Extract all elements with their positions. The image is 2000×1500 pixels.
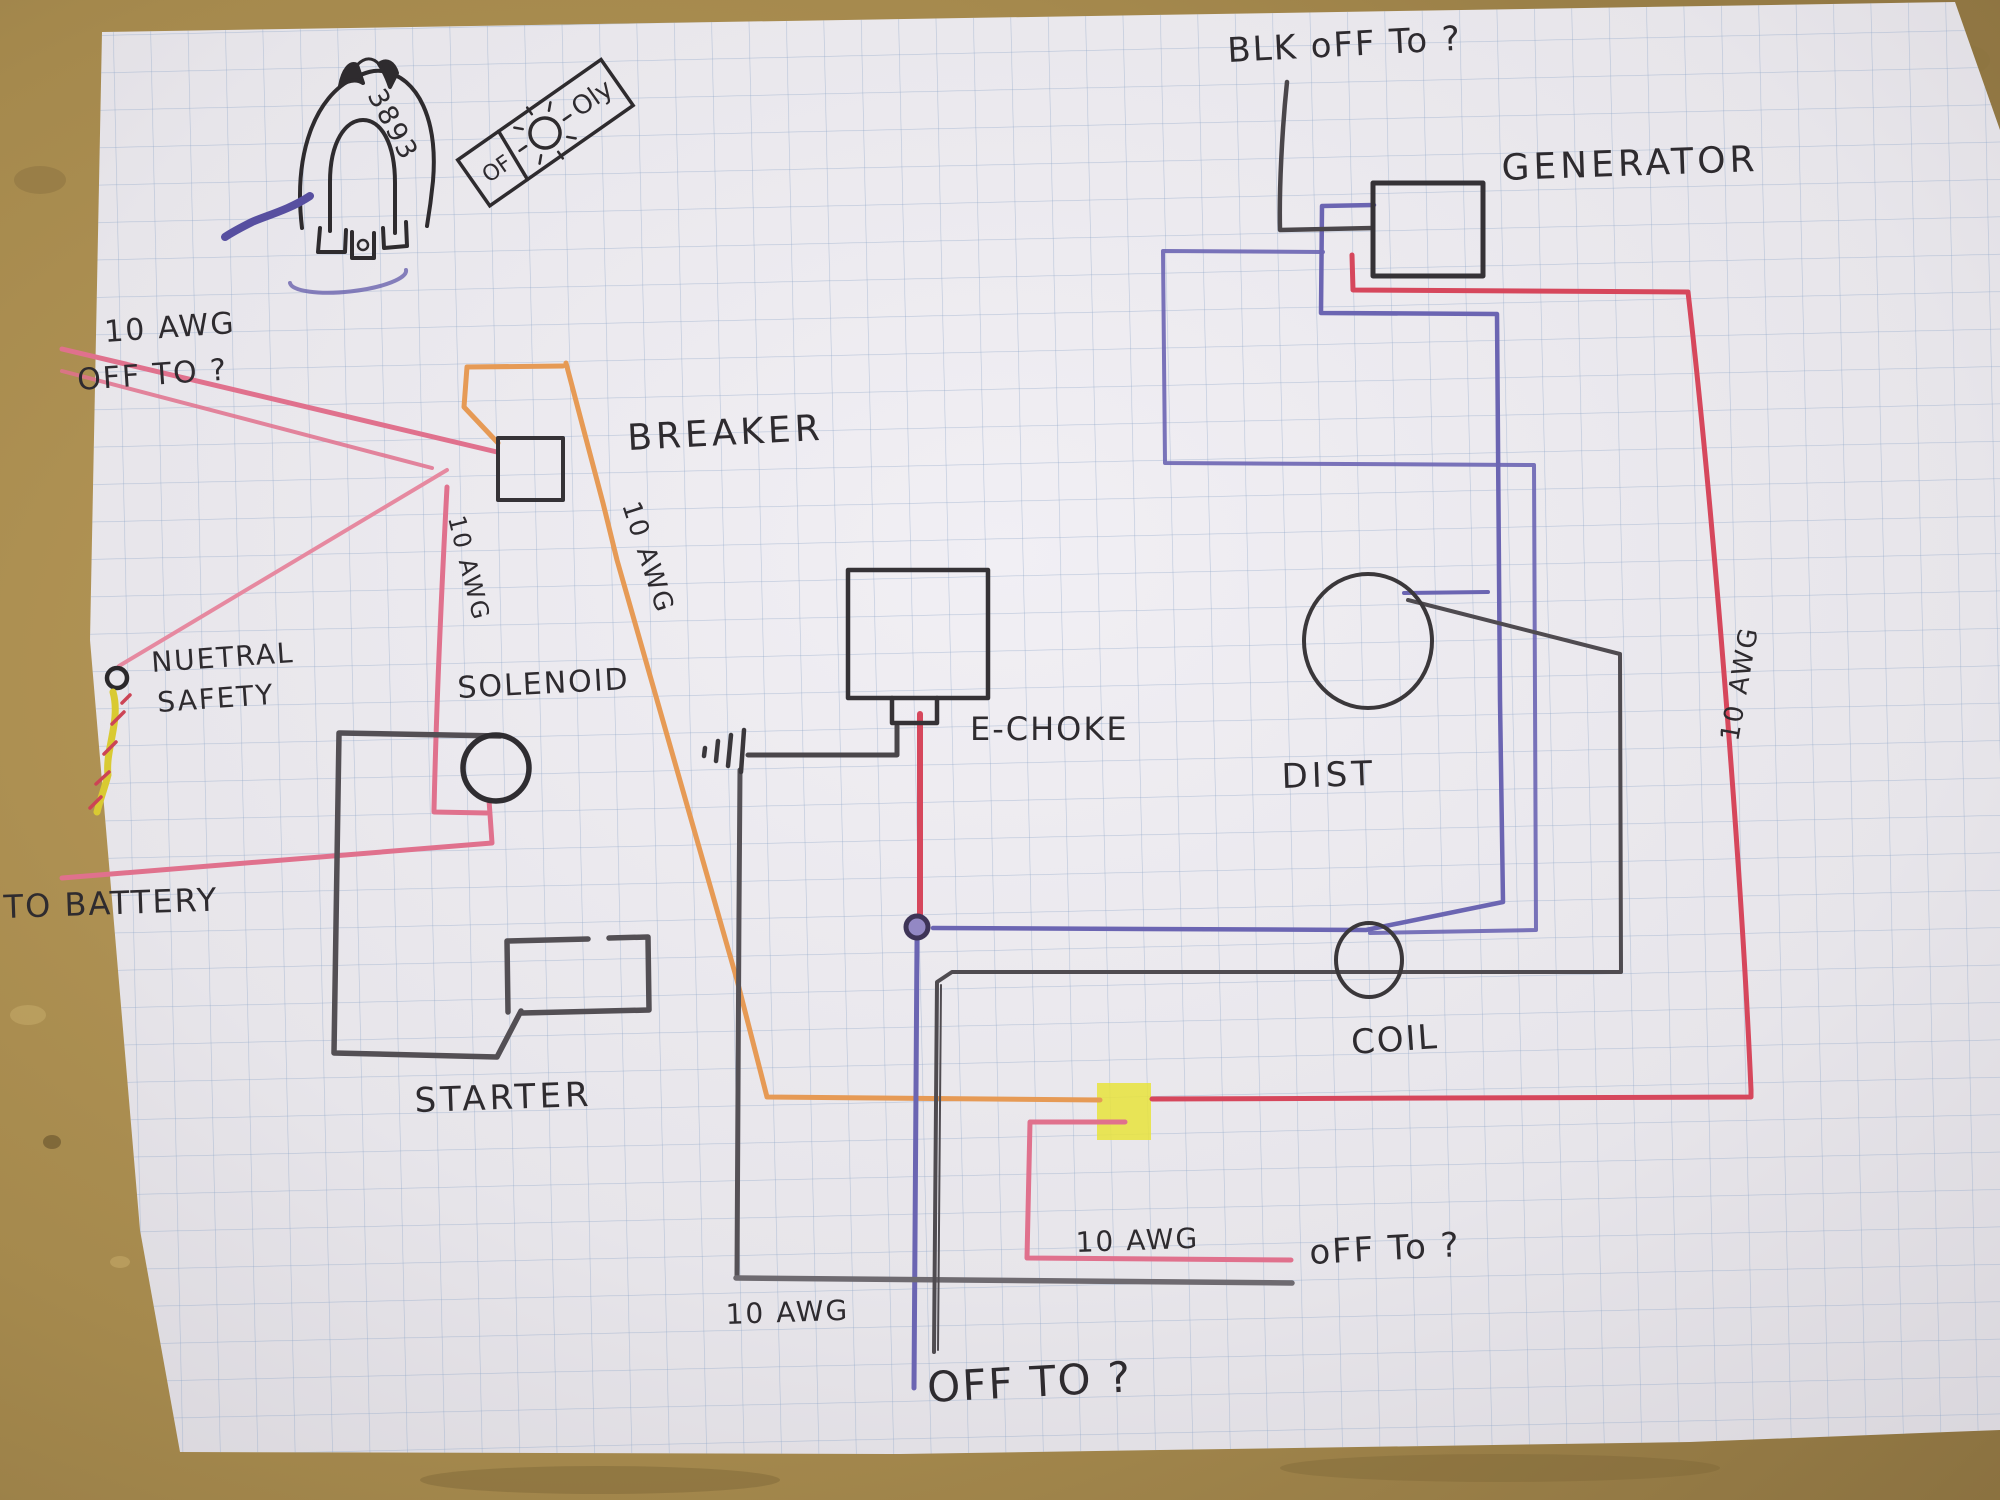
blue-wire-down-off-to [914,941,917,1388]
label-awg-bottom-right: 10 AWG [1075,1222,1200,1259]
marker-yellow-junction [1097,1083,1151,1140]
diagram-canvas: 3893 Oly OF [0,0,2000,1500]
table-shadow [1280,1454,1720,1482]
black-wire-ground-down [737,770,740,1276]
label-starter: STARTER [414,1075,593,1121]
label-coil: COIL [1350,1017,1440,1063]
photo-of-wiring-diagram: 3893 Oly OF [0,0,2000,1500]
blue-wire-dist-branch [1404,592,1488,593]
label-awg-bottom-center: 10 AWG [725,1294,850,1331]
table-speckle [10,1005,46,1025]
label-dist: DIST [1281,754,1377,797]
label-off-to-bottom-right: oFF To ? [1308,1225,1461,1273]
table-speckle [43,1135,61,1149]
table-speckle [110,1256,130,1268]
table-speckle [14,166,66,194]
junction-dot [906,916,928,938]
label-to-battery: TO BATTERY [2,881,219,927]
table-shadow [420,1466,780,1494]
label-e-choke: E-CHOKE [970,710,1129,748]
